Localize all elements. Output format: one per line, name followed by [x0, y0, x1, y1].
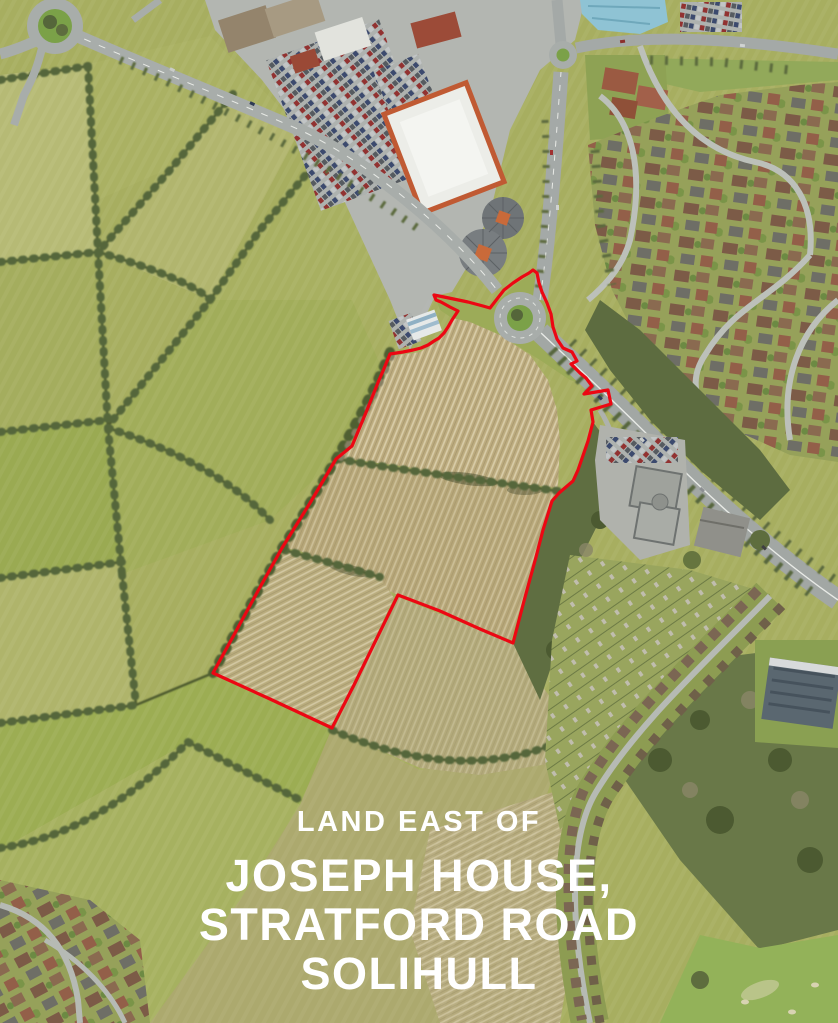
school-building: [755, 640, 838, 748]
aerial-photo: [0, 0, 838, 1023]
car-park: [680, 2, 742, 32]
roundabout-mini: [549, 41, 577, 69]
aerial-photo-canvas: LAND EAST OF JOSEPH HOUSE, STRATFORD ROA…: [0, 0, 838, 1023]
roundabout-northwest: [27, 0, 83, 54]
roundabout-main: [494, 292, 546, 344]
